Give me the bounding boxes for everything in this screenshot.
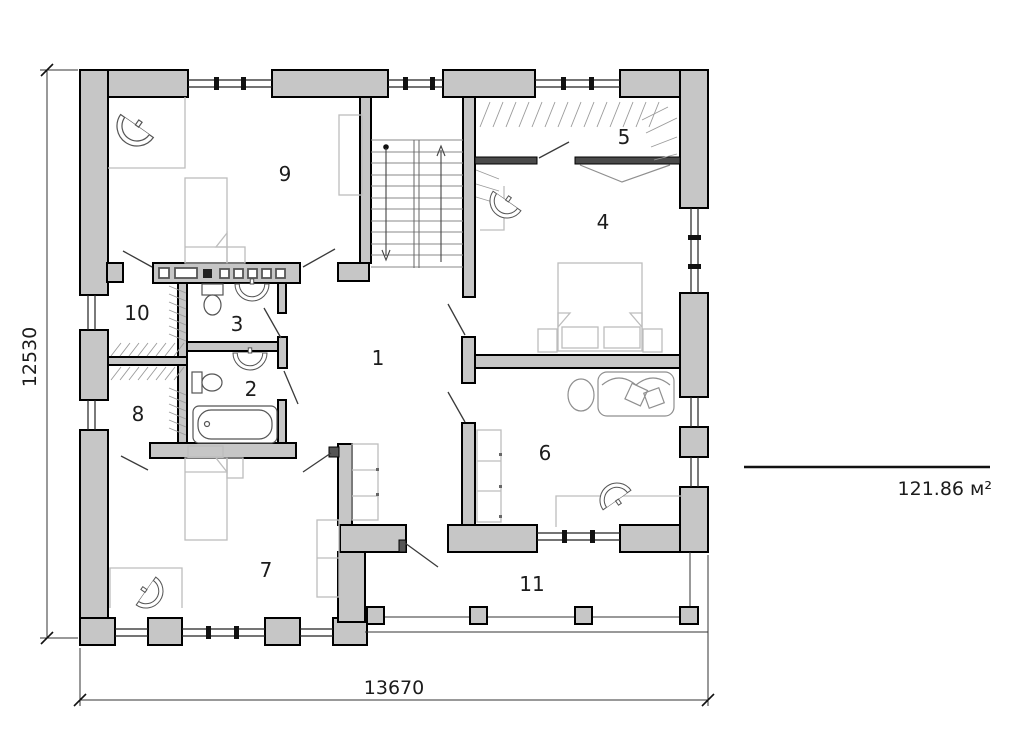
room-label-11: 11 <box>519 572 544 596</box>
terrace-columns <box>367 607 698 624</box>
stair-down-arrow <box>382 144 390 260</box>
room-label-10: 10 <box>124 301 149 325</box>
washbasin-icon-room7 <box>132 574 170 615</box>
room-label-4: 4 <box>597 210 610 234</box>
room-label-2: 2 <box>245 377 258 401</box>
area-annotation: 121.86 м² <box>744 467 992 500</box>
toilet-icon-room2 <box>192 372 222 393</box>
shelf-unit-room7 <box>317 520 339 597</box>
closet-rod-room4 <box>580 165 670 182</box>
room-label-8: 8 <box>132 402 145 426</box>
wardrobe-room9 <box>339 115 362 195</box>
internal-walls <box>107 97 680 552</box>
shelf-unit-room6 <box>477 430 502 522</box>
room-label-7: 7 <box>260 558 273 582</box>
bed-icon-room7 <box>185 446 243 540</box>
wardrobe-hatch-room5 <box>476 102 677 203</box>
vent-duct-wall <box>153 263 300 283</box>
bed-icon-room4 <box>538 263 662 352</box>
bathtub-icon <box>193 406 277 443</box>
coffee-table-icon <box>568 379 594 411</box>
toilet-icon-room3 <box>202 284 223 315</box>
bed-icon-room9 <box>185 178 245 263</box>
wardrobe-hatch-room8 <box>111 367 186 435</box>
room-label-1: 1 <box>372 346 385 370</box>
floor-plan-canvas: 12530 13670 121.86 м² 1 2 3 4 5 6 7 8 9 … <box>0 0 1024 736</box>
staircase <box>371 140 463 268</box>
sofa-icon <box>598 372 674 416</box>
dimension-horizontal-value: 13670 <box>364 677 424 699</box>
shelf-unit-hall <box>352 444 379 520</box>
room-label-6: 6 <box>539 441 552 465</box>
dimension-vertical-value: 12530 <box>19 327 41 387</box>
washbasin-icon-room9 <box>109 110 157 154</box>
dimension-vertical: 12530 <box>19 64 78 644</box>
room-label-3: 3 <box>231 312 244 336</box>
area-value: 121.86 м² <box>898 478 992 500</box>
washbasin-icon-room6 <box>593 476 634 514</box>
room-label-9: 9 <box>279 162 292 186</box>
floor-plan-page: 12530 13670 121.86 м² 1 2 3 4 5 6 7 8 9 … <box>0 0 1024 736</box>
room-label-5: 5 <box>618 125 631 149</box>
